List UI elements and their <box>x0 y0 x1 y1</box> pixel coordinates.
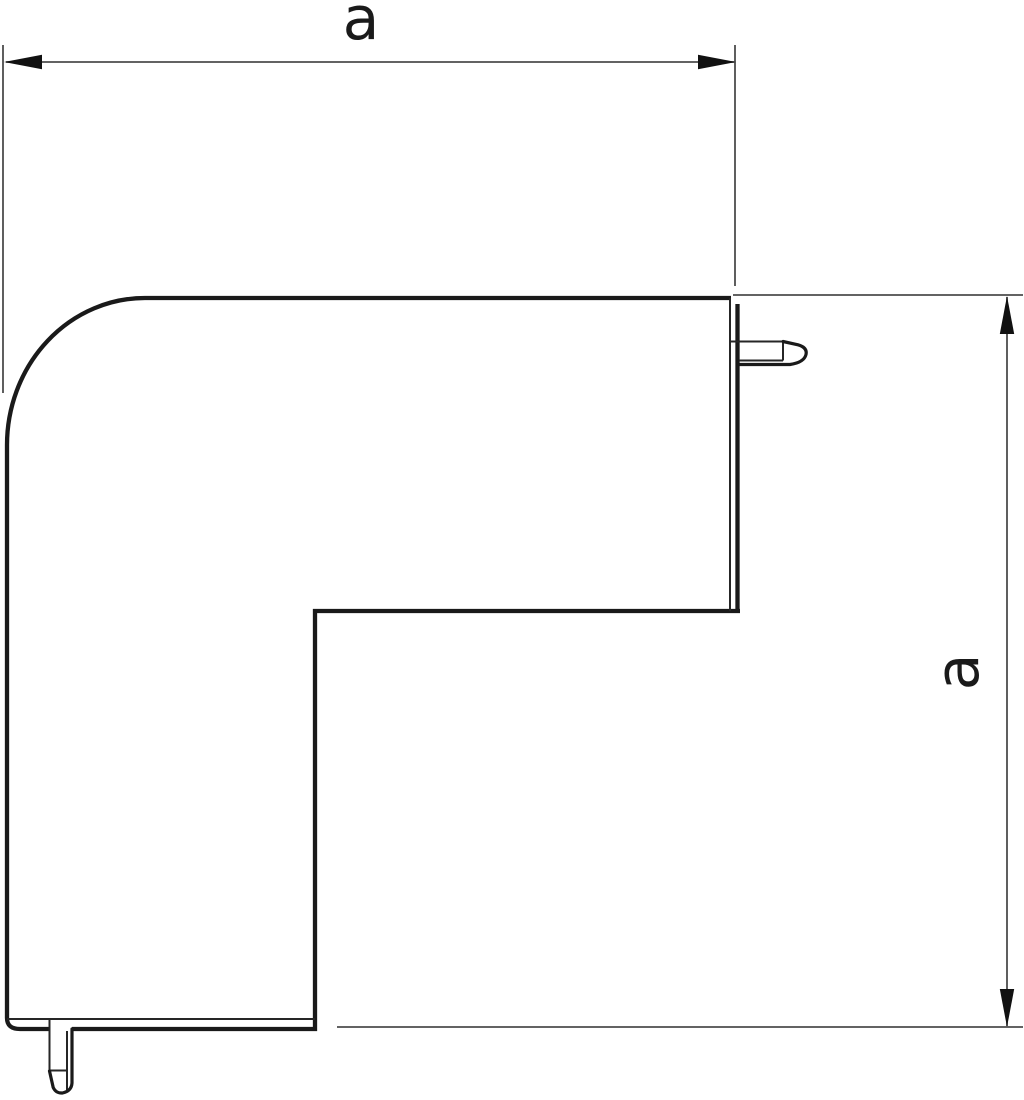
dim-h-arrow-right <box>698 55 736 69</box>
latch-top-right <box>730 342 806 365</box>
body-inner-outline <box>72 611 740 1029</box>
dimension-label-horizontal: a <box>343 0 380 54</box>
dimension-label-vertical: a <box>923 654 993 691</box>
corner-piece-drawing: a a <box>0 0 1024 1100</box>
body-outer-outline <box>7 298 731 1029</box>
corner-piece-body <box>7 298 740 1029</box>
dim-v-arrow-top <box>1000 296 1014 334</box>
latch-bottom-left <box>50 1019 73 1093</box>
dimension-horizontal: a <box>3 0 736 393</box>
dimension-vertical: a <box>337 295 1023 1027</box>
latch-bl-nose-outline <box>50 1029 73 1093</box>
technical-drawing-page: a a <box>0 0 1024 1100</box>
dim-v-arrow-bottom <box>1000 989 1014 1027</box>
dim-h-arrow-left <box>4 55 42 69</box>
